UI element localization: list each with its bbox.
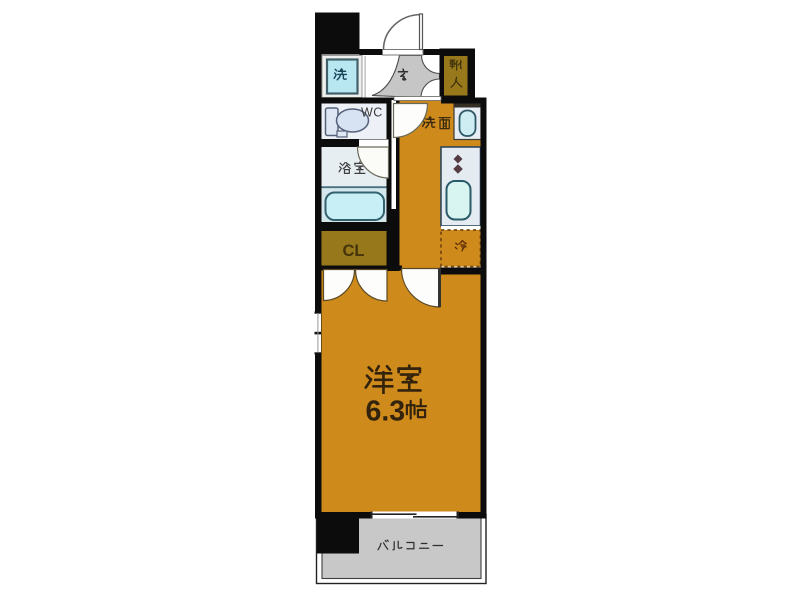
svg-text:CL: CL — [343, 242, 365, 260]
svg-text:WC: WC — [361, 106, 383, 120]
svg-text:6.3: 6.3 — [366, 396, 406, 428]
